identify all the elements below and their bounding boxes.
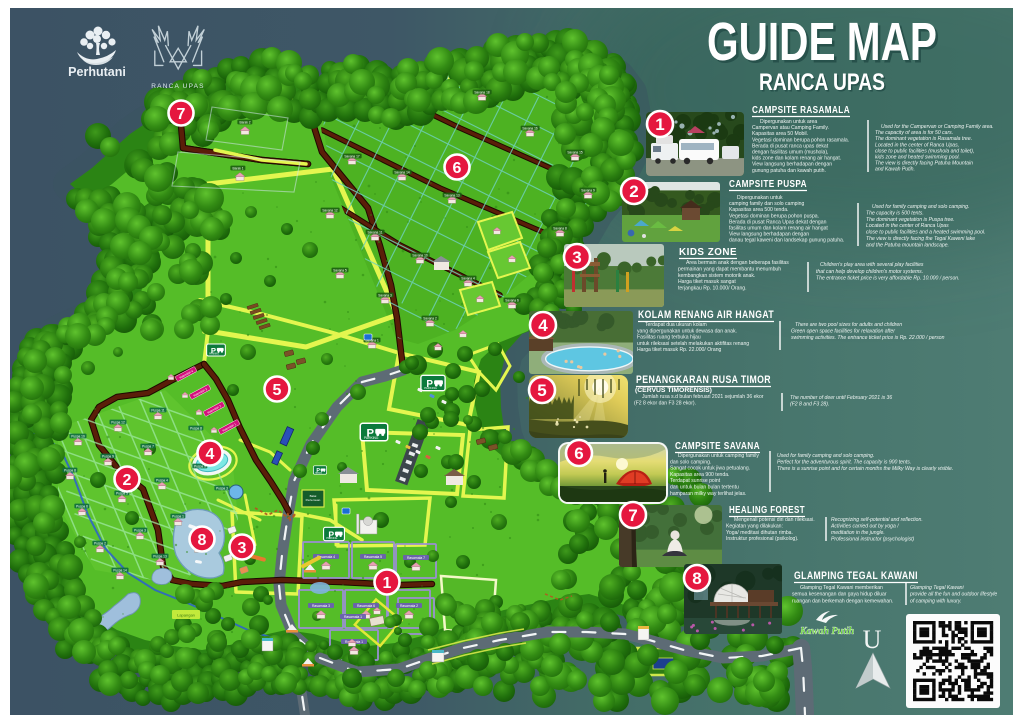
svg-text:PENANGKARAN RUSA TIMOR: PENANGKARAN RUSA TIMOR (636, 374, 771, 386)
svg-text:U: U (863, 625, 882, 654)
svg-text:5: 5 (537, 381, 546, 400)
svg-text:3: 3 (572, 248, 581, 267)
svg-text:Puspa 4: Puspa 4 (156, 478, 168, 482)
svg-text:GUIDE MAP: GUIDE MAP (707, 12, 937, 72)
svg-text:Puspa 13: Puspa 13 (153, 554, 167, 558)
svg-text:4: 4 (206, 446, 215, 463)
svg-text:Puspa 2: Puspa 2 (94, 541, 106, 545)
svg-text:Barak 1: Barak 1 (233, 166, 244, 170)
svg-text:Puspa 14: Puspa 14 (113, 568, 127, 572)
svg-text:Barak 2: Barak 2 (240, 120, 251, 124)
svg-text:GLAMPING TEGAL KAWANI: GLAMPING TEGAL KAWANI (794, 570, 918, 582)
svg-text:1: 1 (383, 575, 392, 592)
svg-text:Pertemuan: Pertemuan (306, 498, 321, 502)
svg-text:Savana 16: Savana 16 (522, 126, 537, 130)
svg-text:Lapangan: Lapangan (177, 613, 195, 618)
svg-text:Rasamala 5: Rasamala 5 (364, 555, 382, 559)
svg-text:Savana 15: Savana 15 (567, 150, 582, 154)
svg-text:Rasamala 7: Rasamala 7 (407, 556, 425, 560)
svg-text:Rasamala 3: Rasamala 3 (312, 604, 330, 608)
svg-text:Puspa 7: Puspa 7 (142, 444, 154, 448)
svg-text:(CERVUS TIMORENSIS): (CERVUS TIMORENSIS) (635, 387, 712, 394)
svg-text:CAMPSITE PUSPA: CAMPSITE PUSPA (729, 179, 807, 190)
svg-text:Savana 18: Savana 18 (474, 90, 489, 94)
svg-text:1: 1 (655, 115, 664, 134)
svg-text:RANCA UPAS: RANCA UPAS (151, 83, 204, 90)
svg-text:Savana 3: Savana 3 (378, 293, 392, 297)
svg-text:Puspa 8: Puspa 8 (64, 468, 76, 472)
svg-text:Puspa 9: Puspa 9 (102, 454, 114, 458)
svg-text:Puspa 8: Puspa 8 (190, 426, 202, 430)
svg-text:CAMPSITE RASAMALA: CAMPSITE RASAMALA (752, 105, 850, 116)
svg-text:2: 2 (123, 472, 132, 489)
svg-text:Puspa 3: Puspa 3 (216, 486, 228, 490)
svg-text:Glamping Tegal Kawani memberik: Glamping Tegal Kawani memberikansemua ke… (792, 585, 893, 604)
svg-text:HEALING FOREST: HEALING FOREST (729, 505, 805, 516)
svg-text:RANCA UPAS: RANCA UPAS (759, 69, 885, 96)
svg-text:7: 7 (628, 506, 637, 525)
svg-text:Savana 4: Savana 4 (461, 276, 475, 280)
svg-text:Savana 14: Savana 14 (394, 170, 409, 174)
svg-text:Puspa 1: Puspa 1 (172, 514, 184, 518)
svg-text:Rasamala 2: Rasamala 2 (400, 604, 418, 608)
svg-text:2: 2 (629, 182, 638, 201)
svg-text:Puspa 12: Puspa 12 (111, 420, 125, 424)
svg-text:Rasamala 6: Rasamala 6 (357, 604, 375, 608)
svg-text:KIDS ZONE: KIDS ZONE (679, 247, 737, 258)
svg-text:Savana 8: Savana 8 (553, 226, 567, 230)
svg-text:Savana 17: Savana 17 (344, 154, 359, 158)
svg-text:KOLAM RENANG AIR HANGAT: KOLAM RENANG AIR HANGAT (638, 309, 774, 321)
svg-text:Savana 5: Savana 5 (333, 268, 347, 272)
svg-text:Puspa 6: Puspa 6 (76, 504, 88, 508)
svg-text:Puspa 10: Puspa 10 (71, 434, 85, 438)
svg-text:4: 4 (538, 316, 548, 335)
svg-text:Puspa 3: Puspa 3 (134, 528, 146, 532)
svg-text:8: 8 (198, 532, 207, 549)
svg-text:Savana 9: Savana 9 (581, 188, 595, 192)
svg-text:Savana 12: Savana 12 (322, 208, 337, 212)
svg-text:3: 3 (238, 540, 247, 557)
svg-text:8: 8 (692, 569, 701, 588)
svg-text:Savana 10: Savana 10 (412, 253, 427, 257)
svg-text:5: 5 (273, 382, 282, 399)
svg-text:Kawah Putih: Kawah Putih (799, 626, 855, 637)
svg-text:Puspa 11: Puspa 11 (151, 408, 164, 412)
svg-text:Rasamala 1: Rasamala 1 (344, 615, 362, 619)
svg-text:Savana 11: Savana 11 (367, 230, 382, 234)
svg-text:6: 6 (574, 444, 583, 463)
svg-text:Savana 13: Savana 13 (444, 193, 459, 197)
svg-text:Savana 2: Savana 2 (423, 316, 437, 320)
svg-text:7: 7 (177, 106, 186, 123)
svg-text:Perhutani: Perhutani (68, 65, 126, 79)
svg-text:CAMPSITE SAVANA: CAMPSITE SAVANA (675, 441, 760, 452)
svg-text:6: 6 (453, 160, 462, 177)
svg-text:Savana 6: Savana 6 (505, 298, 519, 302)
